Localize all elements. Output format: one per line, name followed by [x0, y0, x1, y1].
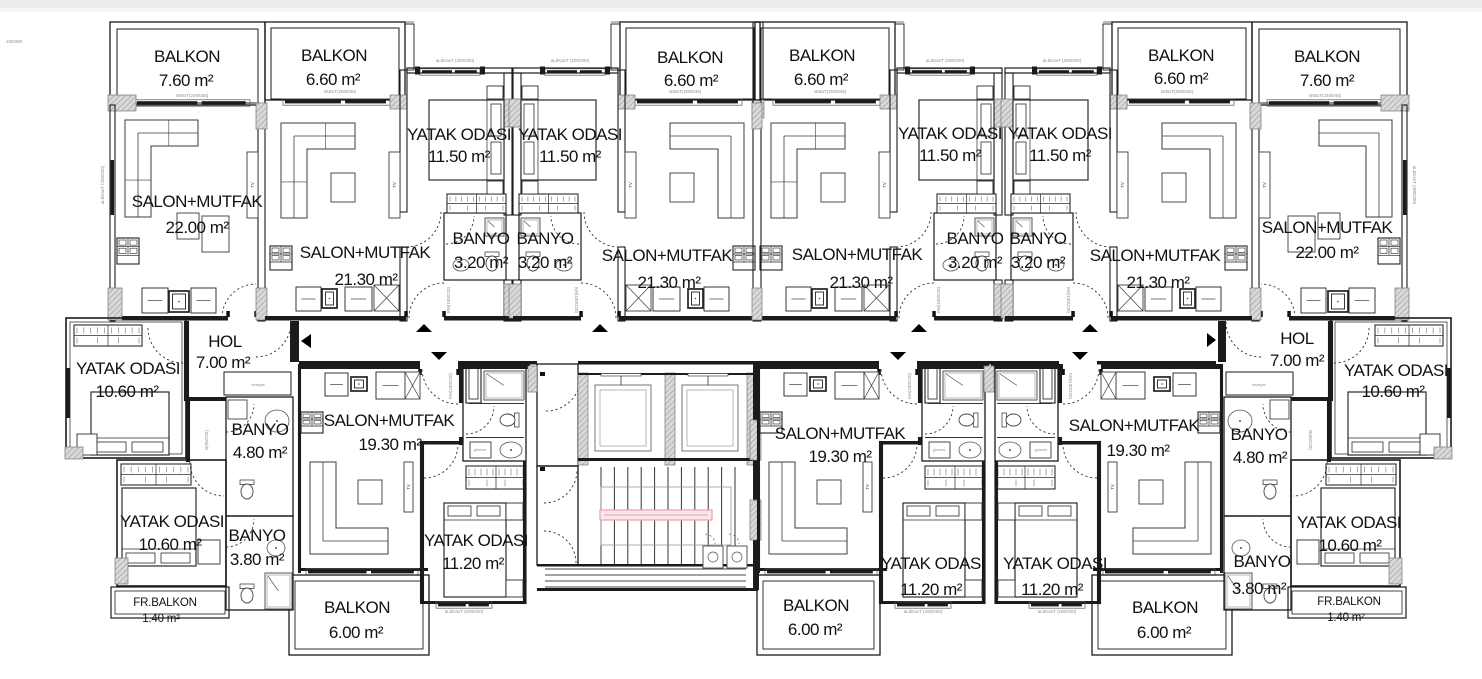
svg-text:SALON+MUTFAK: SALON+MUTFAK [300, 243, 432, 262]
svg-text:sKBxT(200/045): sKBxT(200/045) [814, 89, 847, 94]
svg-text:11.20 m²: 11.20 m² [1021, 580, 1084, 599]
svg-text:3.20 m²: 3.20 m² [454, 253, 509, 272]
svg-text:YATAK ODASI: YATAK ODASI [1344, 361, 1448, 380]
svg-text:BANYO: BANYO [452, 229, 509, 248]
svg-text:vestiyer: vestiyer [1252, 382, 1266, 387]
svg-text:TV: TV [1120, 182, 1125, 188]
svg-text:3.20 m²: 3.20 m² [1011, 253, 1066, 272]
svg-text:22.00 m²: 22.00 m² [165, 218, 229, 237]
svg-text:BANYO: BANYO [1009, 229, 1066, 248]
svg-text:11.50 m²: 11.50 m² [1029, 146, 1092, 165]
svg-text:3.80 m²: 3.80 m² [1232, 579, 1287, 598]
svg-text:BALKON: BALKON [789, 46, 855, 65]
svg-text:SALON+MUTFAK: SALON+MUTFAK [324, 411, 456, 430]
svg-text:19.30 m²: 19.30 m² [358, 435, 422, 454]
svg-text:BANYO: BANYO [1233, 552, 1290, 571]
svg-text:KM(100/220): KM(100/220) [907, 372, 912, 399]
svg-text:1.40 m²: 1.40 m² [142, 613, 180, 625]
svg-text:sKBxT(240/045): sKBxT(240/045) [176, 93, 209, 98]
svg-text:3.20 m²: 3.20 m² [948, 253, 1003, 272]
svg-text:FR.BALKON: FR.BALKON [133, 597, 196, 609]
svg-text:FR.BALKON: FR.BALKON [1317, 596, 1380, 608]
svg-text:YATAK ODASI: YATAK ODASI [76, 359, 180, 378]
svg-text:11.50 m²: 11.50 m² [428, 147, 491, 166]
svg-text:3.20 m²: 3.20 m² [518, 253, 573, 272]
svg-text:sKBxT(200/045): sKBxT(200/045) [324, 89, 357, 94]
svg-text:KM(100/220): KM(100/220) [446, 286, 451, 313]
svg-text:aLbKavT (200/200): aLbKavT (200/200) [436, 58, 475, 63]
svg-text:TV: TV [1262, 182, 1267, 188]
svg-text:aLbKavT (200/200): aLbKavT (200/200) [904, 609, 943, 614]
svg-text:11.20 m²: 11.20 m² [900, 580, 963, 599]
svg-text:aLbKavT (200/200): aLbKavT (200/200) [445, 609, 484, 614]
svg-text:gömme: gömme [474, 448, 487, 452]
svg-text:BANYO: BANYO [228, 526, 285, 545]
svg-text:aLbKavT (200/200): aLbKavT (200/200) [926, 58, 965, 63]
svg-text:aLbKavT (200/200): aLbKavT (200/200) [551, 58, 590, 63]
svg-text:TV: TV [406, 484, 411, 490]
svg-text:7.00 m²: 7.00 m² [1270, 351, 1325, 370]
svg-text:B(90/220): B(90/220) [204, 430, 209, 450]
svg-text:sKBxT(240/045): sKBxT(240/045) [1309, 93, 1342, 98]
svg-text:SALON+MUTFAK: SALON+MUTFAK [132, 192, 264, 211]
svg-text:4.80 m²: 4.80 m² [1233, 448, 1288, 467]
svg-text:6.60 m²: 6.60 m² [1154, 69, 1209, 88]
svg-text:BALKON: BALKON [783, 596, 849, 615]
svg-text:BALKON: BALKON [324, 598, 390, 617]
svg-text:11.50 m²: 11.50 m² [919, 146, 982, 165]
svg-text:22.00 m²: 22.00 m² [1295, 243, 1359, 262]
svg-text:SALON+MUTFAK: SALON+MUTFAK [1090, 246, 1222, 265]
svg-text:SALON+MUTFAK: SALON+MUTFAK [602, 246, 734, 265]
svg-text:21.30 m²: 21.30 m² [637, 273, 701, 292]
svg-text:SALON+MUTFAK: SALON+MUTFAK [792, 245, 924, 264]
svg-text:1.40 m²: 1.40 m² [1327, 612, 1365, 624]
svg-text:KM(100/220): KM(100/220) [1068, 373, 1073, 400]
svg-text:21.30 m²: 21.30 m² [1126, 273, 1190, 292]
svg-text:gömme: gömme [1035, 448, 1048, 452]
svg-text:19.30 m²: 19.30 m² [1106, 441, 1170, 460]
svg-text:KM(100/220): KM(100/220) [1066, 287, 1071, 314]
svg-text:YATAK ODASI: YATAK ODASI [407, 125, 511, 144]
svg-text:21.30 m²: 21.30 m² [334, 270, 398, 289]
svg-text:4.80 m²: 4.80 m² [233, 443, 288, 462]
svg-text:BANYO: BANYO [1230, 425, 1287, 444]
svg-text:YATAK ODASI: YATAK ODASI [1003, 554, 1107, 573]
svg-text:11.20 m²: 11.20 m² [442, 554, 505, 573]
svg-text:10.60 m²: 10.60 m² [1318, 536, 1382, 555]
svg-text:6.60 m²: 6.60 m² [306, 70, 361, 89]
svg-text:SALON+MUTFAK: SALON+MUTFAK [775, 424, 907, 443]
svg-text:BANYO: BANYO [231, 420, 288, 439]
svg-text:BALKON: BALKON [657, 48, 723, 67]
svg-text:10.60 m²: 10.60 m² [138, 535, 202, 554]
svg-text:YATAK ODASI: YATAK ODASI [518, 125, 622, 144]
svg-text:YATAK ODASI: YATAK ODASI [120, 512, 224, 531]
svg-text:6.00 m²: 6.00 m² [329, 623, 384, 642]
svg-text:TV: TV [392, 182, 397, 188]
svg-text:6.00 m²: 6.00 m² [1137, 623, 1192, 642]
svg-text:10.60 m²: 10.60 m² [1361, 382, 1425, 401]
svg-text:TV: TV [250, 182, 255, 188]
svg-text:6.60 m²: 6.60 m² [794, 70, 849, 89]
svg-text:aLbKavT (200/200): aLbKavT (200/200) [1038, 609, 1077, 614]
svg-text:aLbKavT (200/200): aLbKavT (200/200) [1412, 166, 1417, 205]
svg-text:TV: TV [865, 484, 870, 490]
svg-text:BANYO: BANYO [946, 229, 1003, 248]
svg-text:3.80 m²: 3.80 m² [230, 550, 285, 569]
svg-text:KM(100/220): KM(100/220) [574, 287, 579, 314]
svg-text:6.00 m²: 6.00 m² [788, 620, 843, 639]
svg-text:vestiyer: vestiyer [251, 382, 265, 387]
svg-text:160/060: 160/060 [6, 39, 23, 44]
svg-text:7.00 m²: 7.00 m² [196, 353, 251, 372]
svg-text:sKBxT(200/045): sKBxT(200/045) [1161, 89, 1194, 94]
svg-text:BANYO: BANYO [516, 229, 573, 248]
svg-text:7.60 m²: 7.60 m² [159, 71, 214, 90]
svg-text:11.50 m²: 11.50 m² [539, 147, 602, 166]
svg-text:10.60 m²: 10.60 m² [95, 382, 159, 401]
svg-text:B(90/220): B(90/220) [1308, 430, 1313, 450]
svg-text:aLbKavT (200/200): aLbKavT (200/200) [1043, 58, 1082, 63]
svg-text:aLbKavT (200/200): aLbKavT (200/200) [100, 165, 105, 204]
svg-text:BALKON: BALKON [1294, 47, 1360, 66]
svg-text:SALON+MUTFAK: SALON+MUTFAK [1069, 416, 1201, 435]
svg-text:TV: TV [1110, 484, 1115, 490]
svg-text:BALKON: BALKON [1132, 598, 1198, 617]
svg-text:HOL: HOL [208, 332, 242, 351]
svg-text:6.60 m²: 6.60 m² [664, 71, 719, 90]
svg-text:YATAK ODASI: YATAK ODASI [881, 554, 985, 573]
svg-text:YATAK ODASI: YATAK ODASI [1008, 124, 1112, 143]
svg-text:KM(100/220): KM(100/220) [448, 372, 453, 399]
svg-text:HOL: HOL [1280, 329, 1314, 348]
svg-text:TV: TV [628, 182, 633, 188]
svg-text:BALKON: BALKON [301, 46, 367, 65]
svg-text:BALKON: BALKON [154, 47, 220, 66]
svg-text:SALON+MUTFAK: SALON+MUTFAK [1262, 218, 1394, 237]
svg-text:YATAK ODASI: YATAK ODASI [424, 531, 528, 550]
svg-text:KM(100/220): KM(100/220) [936, 286, 941, 313]
svg-text:21.30 m²: 21.30 m² [829, 273, 893, 292]
svg-text:7.60 m²: 7.60 m² [1300, 71, 1355, 90]
svg-text:19.30 m²: 19.30 m² [808, 447, 872, 466]
svg-text:YATAK ODASI: YATAK ODASI [898, 124, 1002, 143]
svg-text:BALKON: BALKON [1148, 46, 1214, 65]
svg-text:TV: TV [882, 182, 887, 188]
svg-text:YATAK ODASI: YATAK ODASI [1297, 513, 1401, 532]
svg-text:gömme: gömme [933, 448, 946, 452]
